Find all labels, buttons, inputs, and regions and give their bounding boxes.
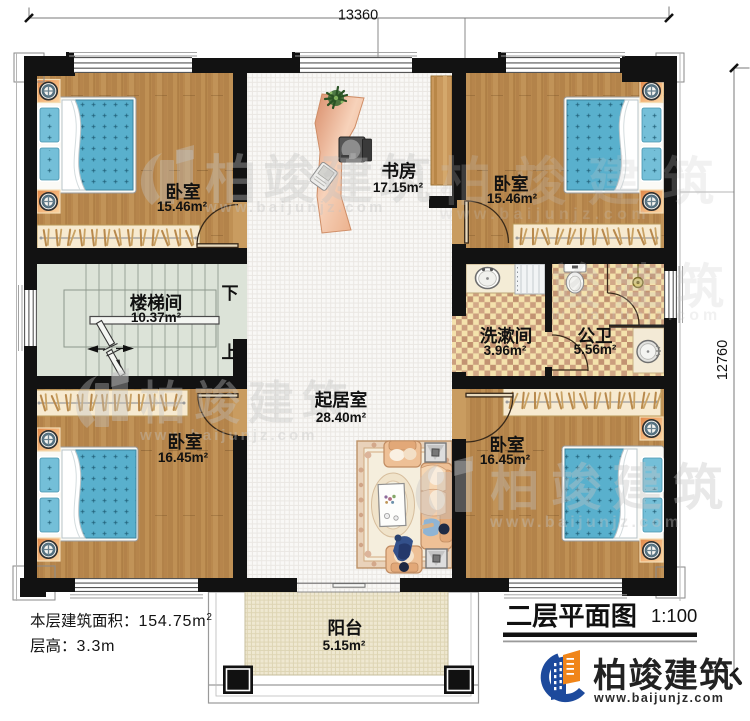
- svg-text:二层平面图: 二层平面图: [506, 601, 637, 631]
- svg-text:17.15m²: 17.15m²: [373, 180, 424, 195]
- svg-text:层高：3.3m: 层高：3.3m: [30, 637, 115, 655]
- svg-text:5.15m²: 5.15m²: [323, 638, 366, 653]
- svg-text:起居室: 起居室: [314, 390, 368, 410]
- svg-text:10.37m²: 10.37m²: [131, 310, 182, 325]
- svg-text:28.40m²: 28.40m²: [316, 410, 367, 425]
- svg-text:1:100: 1:100: [651, 605, 697, 626]
- svg-text:柏竣建筑: 柏竣建筑: [490, 460, 734, 516]
- svg-text:阳台: 阳台: [328, 618, 363, 638]
- svg-text:13360: 13360: [338, 8, 378, 24]
- svg-text:15.46m²: 15.46m²: [157, 199, 208, 214]
- svg-text:3.96m²: 3.96m²: [484, 343, 527, 358]
- svg-text:w.baijunjz.com: w.baijunjz.com: [551, 307, 721, 324]
- svg-text:www.baijunjz.com: www.baijunjz.com: [139, 427, 317, 444]
- svg-text:下: 下: [222, 284, 239, 303]
- svg-text:16.45m²: 16.45m²: [158, 450, 209, 465]
- svg-text:上: 上: [222, 343, 239, 362]
- svg-text:www.baijunjz.com: www.baijunjz.com: [593, 691, 724, 705]
- svg-text:www.baijunjz.com: www.baijunjz.com: [204, 199, 386, 216]
- svg-text:15.46m²: 15.46m²: [487, 191, 538, 206]
- svg-text:柏竣建筑: 柏竣建筑: [440, 154, 736, 212]
- svg-text:本层建筑面积：154.75m2: 本层建筑面积：154.75m2: [30, 612, 212, 630]
- svg-text:柏竣建筑: 柏竣建筑: [593, 656, 735, 695]
- svg-text:www.baijunjz.com: www.baijunjz.com: [489, 514, 683, 531]
- svg-text:www.baijunjz.com: www.baijunjz.com: [439, 206, 650, 223]
- svg-text:5.56m²: 5.56m²: [574, 342, 617, 357]
- svg-text:书房: 书房: [382, 161, 417, 181]
- svg-text:16.45m²: 16.45m²: [480, 452, 531, 467]
- svg-text:卧室: 卧室: [168, 432, 203, 452]
- svg-text:12760: 12760: [715, 340, 731, 380]
